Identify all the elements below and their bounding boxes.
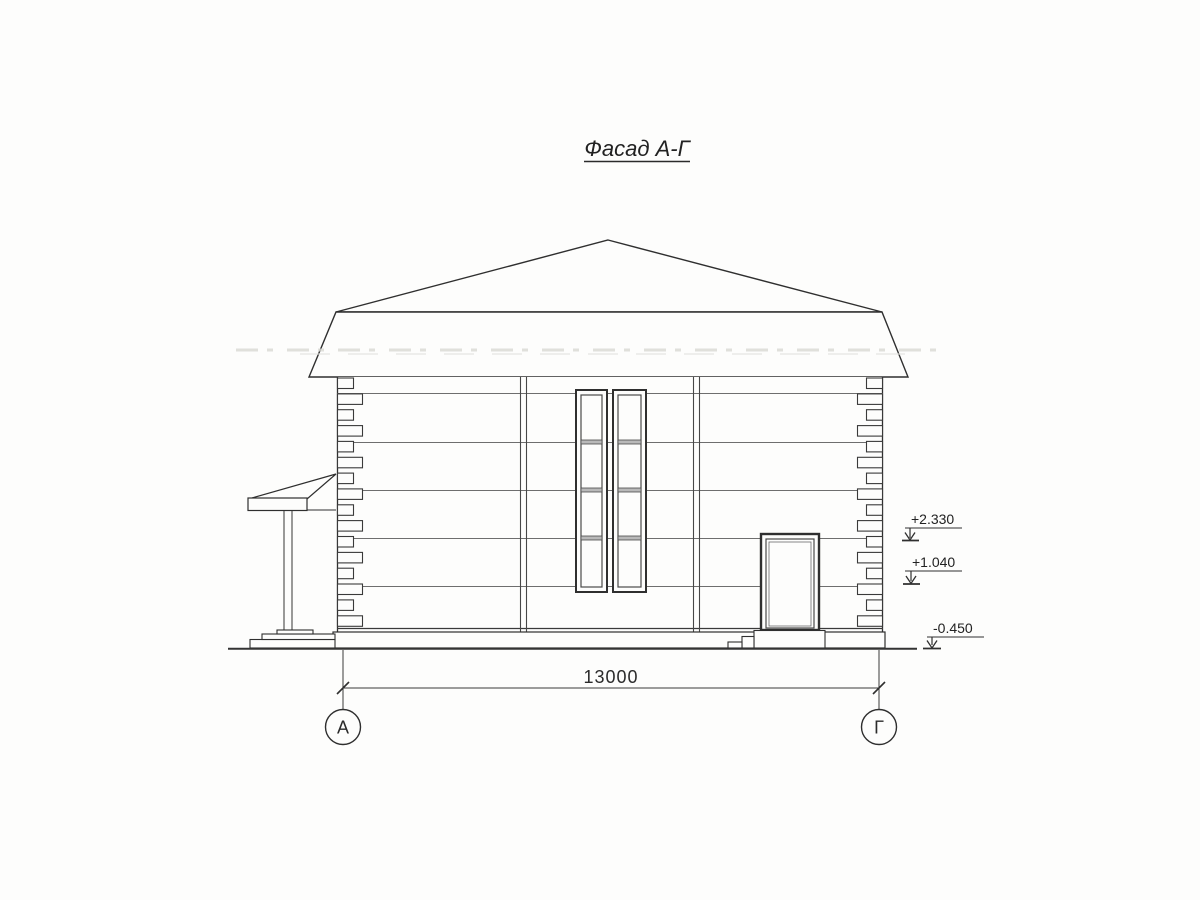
log-end — [867, 441, 883, 452]
log-end — [338, 489, 363, 500]
log-end — [867, 505, 883, 516]
stoop-step — [728, 642, 742, 648]
dimension-label: 13000 — [583, 667, 638, 687]
log-end — [858, 426, 883, 437]
log-end — [338, 552, 363, 563]
window-right — [613, 390, 646, 592]
log-end — [858, 457, 883, 468]
facade-title: Фасад А-Г — [584, 136, 692, 162]
axis-marker-g-label: Г — [874, 718, 884, 738]
porch-step — [277, 630, 313, 634]
porch-step — [262, 634, 335, 640]
log-end — [338, 394, 363, 405]
stoop-platform — [754, 631, 825, 649]
door — [761, 534, 819, 630]
facade-title-text: Фасад А-Г — [584, 136, 691, 161]
log-end — [867, 378, 883, 389]
log-end — [858, 552, 883, 563]
log-end — [338, 584, 363, 595]
log-end — [338, 410, 354, 421]
elevation-mark-2330-value: +2.330 — [911, 511, 954, 527]
log-end — [867, 600, 883, 611]
log-end — [338, 537, 354, 548]
window-muntin — [581, 488, 602, 492]
log-end — [338, 426, 363, 437]
stoop-step — [742, 637, 754, 649]
log-end — [338, 378, 354, 389]
log-end — [338, 616, 363, 627]
log-end — [867, 568, 883, 579]
log-end — [858, 489, 883, 500]
log-end — [338, 505, 354, 516]
log-end — [338, 568, 354, 579]
log-end — [858, 616, 883, 627]
window-muntin — [581, 440, 602, 444]
window-muntin — [581, 536, 602, 540]
porch-canopy-fascia — [248, 498, 307, 511]
log-end — [858, 584, 883, 595]
log-end — [867, 537, 883, 548]
porch-step — [250, 640, 335, 649]
window-left — [576, 390, 607, 592]
axis-marker-a: А — [326, 710, 361, 745]
log-end — [338, 457, 363, 468]
window-muntin — [618, 536, 641, 540]
drawing-sheet: Фасад А-Г — [0, 0, 1200, 900]
axis-marker-a-label: А — [337, 718, 349, 738]
log-end — [858, 394, 883, 405]
log-end — [338, 521, 363, 532]
window-muntin — [618, 440, 641, 444]
log-end — [867, 473, 883, 484]
log-end — [338, 600, 354, 611]
axis-marker-g: Г — [862, 710, 897, 745]
log-end — [338, 441, 354, 452]
elevation-mark-1040-value: +1.040 — [912, 554, 955, 570]
log-end — [858, 521, 883, 532]
log-end — [338, 473, 354, 484]
roof-eave-band — [309, 312, 908, 377]
log-end — [867, 410, 883, 421]
window-muntin — [618, 488, 641, 492]
elevation-mark-0450-value: -0.450 — [933, 620, 973, 636]
